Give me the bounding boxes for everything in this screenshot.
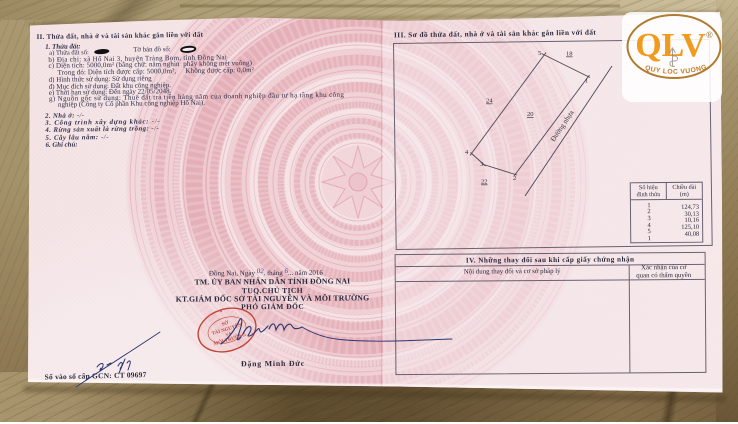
svg-text:®: ® [706,30,713,40]
svg-text:QLV: QLV [635,27,706,64]
